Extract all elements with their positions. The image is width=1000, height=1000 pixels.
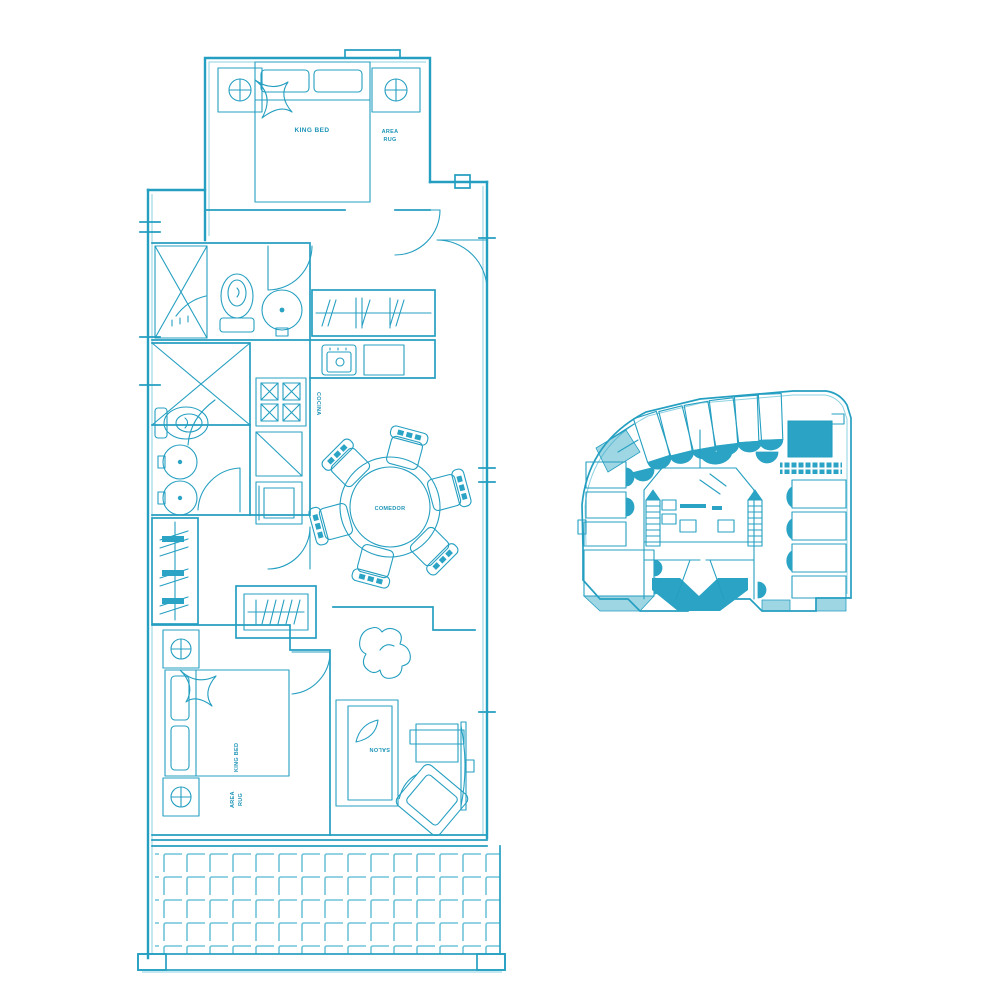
unit [787, 512, 846, 540]
living-room: SALON [152, 607, 487, 838]
kitchen: COCINA [250, 340, 435, 569]
counter-segment [364, 345, 404, 375]
shelf [162, 536, 184, 542]
stair-column-right [748, 490, 762, 546]
corner-unit [596, 430, 640, 472]
key-plan [578, 391, 851, 611]
unit [787, 544, 846, 572]
entry-arrow [652, 578, 748, 611]
bathroom-door [268, 246, 312, 290]
kitchen-door [268, 527, 310, 569]
bedroom-top: KING BED AREA RUG [205, 62, 440, 255]
fridge-diagonal [256, 432, 302, 476]
area-rug-label-line1: AREA [230, 791, 236, 808]
bedroom-bottom: KING BED AREA RUG [152, 625, 330, 835]
unit [584, 522, 626, 546]
unit [792, 576, 846, 598]
shelf [162, 598, 184, 604]
armchair [392, 760, 470, 837]
bathroom-top [152, 243, 312, 340]
terrace [138, 840, 505, 972]
bathroom-sink [262, 290, 302, 336]
living-label: SALON [369, 746, 390, 752]
closet-top [312, 290, 435, 336]
king-bed-bottom: KING BED [165, 670, 289, 776]
kitchen-sink [322, 345, 356, 375]
window-ticks [140, 175, 495, 712]
bathroom-bottom [152, 407, 250, 515]
decor-figure [360, 628, 411, 679]
stair-column-left [646, 490, 660, 546]
oven-tower [256, 482, 302, 524]
bed-outline [165, 670, 289, 776]
exterior-walls [140, 50, 495, 958]
toilet-2 [155, 407, 208, 439]
pillow-icon [314, 70, 362, 92]
blanket-fold [180, 670, 216, 706]
unit-plan: KING BED AREA RUG [138, 50, 505, 972]
bedroom-top-door [395, 210, 440, 255]
shower [155, 246, 207, 338]
shower-head-icon [172, 316, 188, 326]
bathroom2-door [198, 468, 240, 512]
floor-plan-drawing: KING BED AREA RUG [0, 0, 1000, 1000]
nightstand-right [372, 68, 420, 112]
dining-area: COMEDOR [308, 425, 472, 589]
kitchen-label: COCINA [315, 392, 321, 416]
leaf-cushion-icon [356, 720, 378, 742]
nightstand-bottom [163, 778, 199, 816]
nightstand-top [163, 630, 199, 668]
sofa: SALON [336, 700, 398, 806]
terrace-threshold [152, 840, 487, 846]
bedroom-bottom-door [292, 652, 330, 694]
closet-center [236, 586, 316, 638]
closet-left [152, 518, 198, 624]
toilet [220, 274, 254, 332]
dining-label: COMEDOR [375, 506, 406, 512]
bathroom2-walls [152, 425, 250, 515]
balcony-strip [780, 461, 842, 474]
scallop [758, 582, 766, 598]
pillow-icon [171, 726, 189, 770]
bed-label: KING BED [234, 743, 240, 772]
terrace-rail [138, 954, 505, 972]
console-table [410, 724, 464, 762]
bathroom-walls [152, 243, 310, 340]
area-rug-label-line1: AREA [382, 129, 399, 135]
bed-label: KING BED [295, 127, 330, 134]
shower-x [155, 246, 207, 338]
terrace-tiles [155, 850, 500, 954]
king-bed-top: KING BED [255, 62, 370, 202]
highlighted-unit [788, 421, 832, 457]
shelf [162, 570, 184, 576]
unit [586, 492, 634, 518]
floor-plan-sheet: KING BED AREA RUG [0, 0, 1000, 1000]
bottom-right-balconies [762, 598, 846, 611]
core-details [662, 474, 734, 532]
pillow-icon [171, 676, 189, 720]
double-sinks [158, 445, 197, 515]
area-rug-label-line2: RUG [383, 137, 396, 143]
area-rug-label-line2: RUG [238, 793, 244, 806]
living-north-wall [333, 607, 475, 630]
shower-door [176, 296, 206, 316]
unit [787, 480, 846, 508]
stove [256, 378, 306, 426]
entry-door [437, 240, 487, 290]
